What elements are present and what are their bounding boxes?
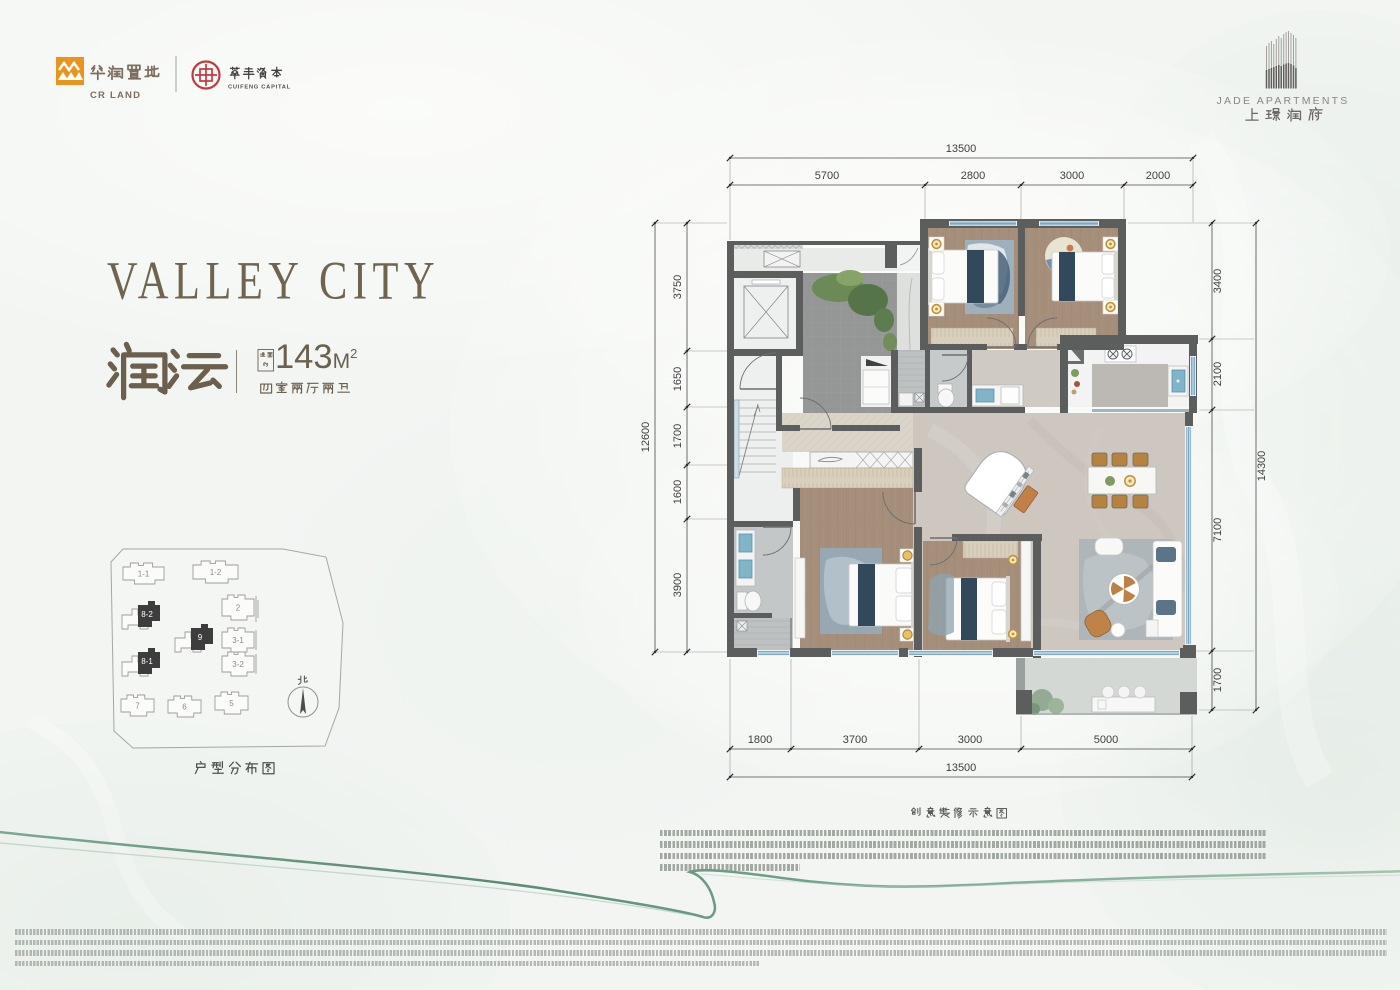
svg-text:2: 2 (236, 604, 241, 613)
svg-text:7100: 7100 (1212, 518, 1224, 542)
svg-text:3700: 3700 (843, 734, 867, 746)
svg-text:3900: 3900 (672, 573, 684, 597)
svg-text:13500: 13500 (946, 143, 977, 155)
svg-text:2100: 2100 (1212, 362, 1224, 386)
svg-text:3000: 3000 (958, 734, 982, 746)
svg-text:2800: 2800 (961, 170, 985, 182)
svg-text:5700: 5700 (815, 170, 839, 182)
svg-text:1-2: 1-2 (210, 568, 222, 577)
svg-text:1600: 1600 (672, 480, 684, 504)
svg-text:CR LAND: CR LAND (90, 90, 141, 101)
svg-text:7: 7 (135, 702, 140, 711)
svg-text:5000: 5000 (1094, 734, 1118, 746)
svg-text:9: 9 (198, 633, 203, 642)
svg-text:8-2: 8-2 (141, 610, 153, 619)
svg-text:3750: 3750 (672, 275, 684, 299)
svg-text:6: 6 (182, 703, 187, 712)
svg-text:8-1: 8-1 (141, 657, 153, 666)
svg-text:1800: 1800 (748, 734, 772, 746)
svg-text:JADE APARTMENTS: JADE APARTMENTS (1217, 95, 1350, 107)
svg-text:3400: 3400 (1212, 269, 1224, 293)
svg-text:CUIFENG CAPITAL: CUIFENG CAPITAL (228, 85, 291, 91)
svg-text:13500: 13500 (946, 762, 977, 774)
svg-text:5: 5 (229, 699, 234, 708)
svg-text:1700: 1700 (672, 424, 684, 448)
svg-text:14300: 14300 (1256, 451, 1268, 482)
svg-text:1-1: 1-1 (138, 570, 150, 579)
svg-text:3-2: 3-2 (232, 660, 244, 669)
svg-text:2000: 2000 (1146, 170, 1170, 182)
svg-text:3000: 3000 (1060, 170, 1084, 182)
svg-text:3-1: 3-1 (232, 636, 244, 645)
svg-text:12600: 12600 (640, 422, 652, 453)
svg-text:1700: 1700 (1212, 668, 1224, 692)
svg-text:1650: 1650 (672, 367, 684, 391)
